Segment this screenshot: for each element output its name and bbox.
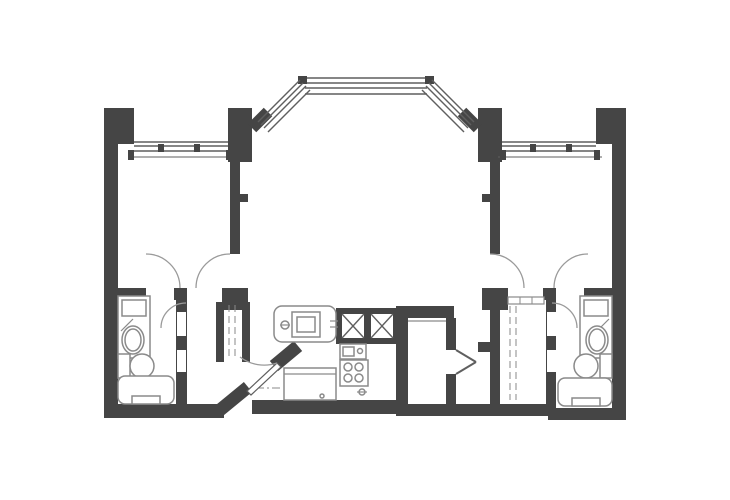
- right-window-mullion-a: [530, 144, 536, 152]
- left-closet-east-wall: [242, 302, 250, 362]
- right-bath-south-wall: [548, 408, 626, 420]
- left-bath-door-jamb-lower: [177, 350, 186, 372]
- right-foyer-corner-block: [482, 288, 508, 310]
- left-bedroom-bath-door-arc: [146, 254, 180, 288]
- den-double-door-leaf-b: [456, 362, 476, 374]
- left-window-mullion-b: [194, 144, 200, 152]
- right-closet-door-track: [508, 297, 544, 304]
- left-window-hook-west: [128, 150, 134, 160]
- right-bedroom-entry-door-arc: [490, 254, 524, 288]
- range: [340, 360, 368, 386]
- bay-left-window-line-3: [264, 86, 306, 128]
- fridge: [284, 368, 336, 400]
- left-toilet-tank: [118, 354, 130, 378]
- left-bedroom-entry-door-arc: [196, 254, 230, 288]
- right-outer-wall: [612, 108, 626, 420]
- left-outer-wall: [104, 108, 118, 418]
- burner-1: [344, 363, 352, 371]
- left-sill-stub: [118, 136, 134, 144]
- left-window-hook-east: [226, 150, 232, 160]
- left-closet-west-wall: [216, 302, 224, 362]
- right-closet-west-wall: [490, 310, 500, 404]
- den-east-wall-upper: [446, 318, 456, 350]
- right-window-mullion-b: [566, 144, 572, 152]
- right-bathtub-detail: [572, 398, 600, 406]
- right-closet-west-stub: [478, 342, 490, 352]
- bay-right-window-line-3: [426, 86, 468, 128]
- den-double-door-leaf-a: [456, 350, 476, 362]
- left-sink-inner: [125, 329, 141, 351]
- right-bath-door-jamb-upper: [547, 312, 556, 336]
- right-bath-partition-wall: [546, 288, 556, 410]
- entry-diagonal-wall-lower: [220, 387, 248, 410]
- left-bath-door-jamb-upper: [177, 312, 186, 336]
- kitchen-sink-bowl: [343, 347, 354, 356]
- burner-4: [355, 374, 363, 382]
- burner-2: [355, 363, 363, 371]
- right-toilet-bowl: [574, 354, 598, 378]
- right-toilet-tank: [600, 354, 612, 378]
- left-bath-south-wall: [104, 404, 190, 418]
- right-bath-door-jamb-lower: [547, 350, 556, 372]
- bay-right-wall-stub: [462, 112, 478, 128]
- left-bath-partition-wall: [176, 288, 187, 410]
- kitchen-sink-dot: [358, 349, 363, 354]
- kitchen-east-wall: [396, 306, 408, 414]
- left-divider-wall: [230, 162, 240, 254]
- right-sink-inner: [589, 329, 605, 351]
- right-window-hook-west: [500, 150, 506, 160]
- den-north-wall: [408, 306, 454, 318]
- entry-door-leaf: [247, 363, 281, 395]
- left-bathtub-detail: [132, 396, 160, 404]
- kitchen-south-wall: [252, 400, 398, 414]
- left-window-mullion-a: [158, 144, 164, 152]
- burner-3: [344, 374, 352, 382]
- left-vanity-shelf: [122, 300, 146, 316]
- right-vanity-shelf: [584, 300, 608, 316]
- right-window-hook-east: [594, 150, 600, 160]
- right-bedroom-bath-door-arc: [554, 254, 588, 288]
- floor-plan: [0, 0, 730, 500]
- right-divider-stub: [482, 194, 490, 202]
- bay-right-window-line-1: [432, 80, 474, 122]
- right-divider-wall: [490, 162, 500, 254]
- bay-right-column: [478, 108, 502, 162]
- oven-inner: [297, 317, 315, 332]
- left-divider-stub: [240, 194, 248, 202]
- floor-plan-svg: [0, 0, 730, 500]
- fridge-handle-dot: [320, 394, 324, 398]
- bay-left-window-line-1: [258, 80, 300, 122]
- left-toilet-bowl: [130, 354, 154, 378]
- center-south-wall: [396, 404, 556, 416]
